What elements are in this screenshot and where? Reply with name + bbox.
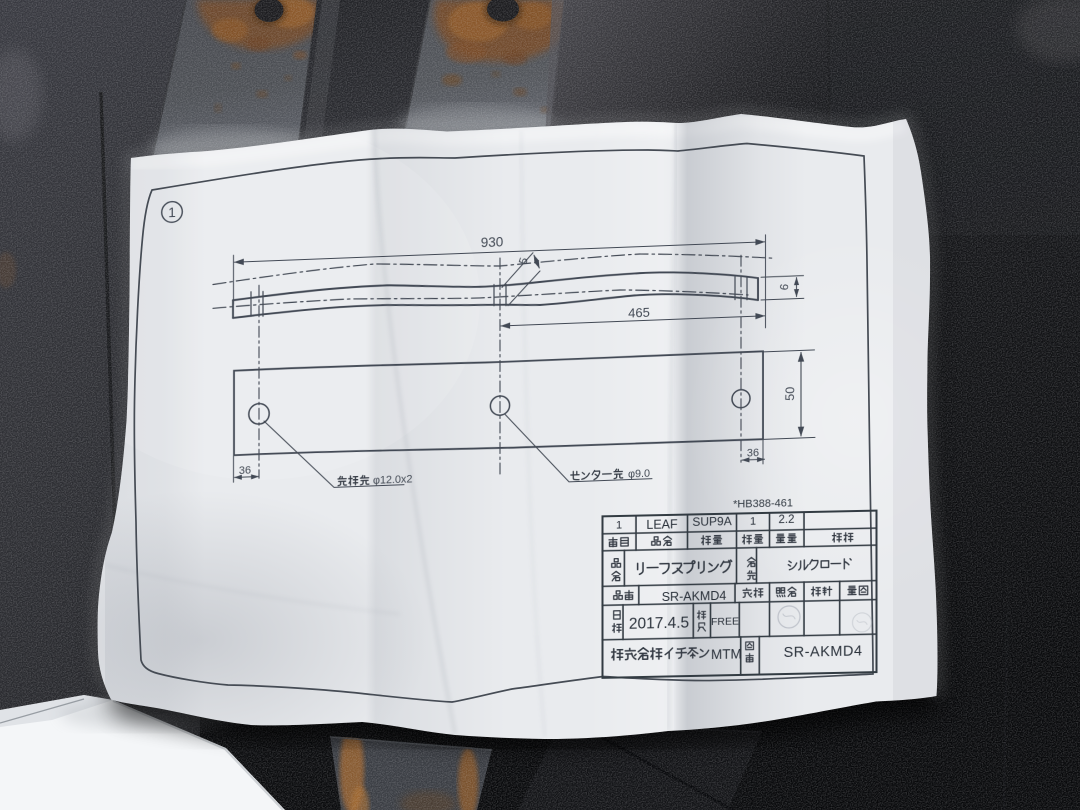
svg-text:6: 6	[779, 283, 792, 291]
svg-text:*HB388-461: *HB388-461	[733, 498, 793, 511]
svg-text:LEAF: LEAF	[646, 517, 678, 532]
svg-text:930: 930	[481, 234, 504, 250]
svg-text:SR-AKMD4: SR-AKMD4	[662, 589, 727, 604]
svg-text:2.2: 2.2	[779, 514, 795, 526]
svg-text:2017.4.5: 2017.4.5	[629, 615, 689, 633]
svg-text:φ12.0x2: φ12.0x2	[373, 473, 412, 487]
svg-text:FREE: FREE	[711, 615, 739, 628]
svg-text:1: 1	[750, 516, 756, 528]
svg-text:SUP9A: SUP9A	[692, 514, 731, 529]
svg-text:465: 465	[628, 305, 650, 321]
svg-text:36: 36	[239, 465, 251, 477]
svg-text:MTM: MTM	[711, 646, 742, 662]
svg-text:50: 50	[783, 387, 797, 401]
svg-text:1: 1	[168, 205, 176, 220]
svg-text:SR-AKMD4: SR-AKMD4	[784, 643, 863, 661]
svg-text:φ9.0: φ9.0	[628, 468, 650, 481]
svg-text:36: 36	[747, 447, 759, 459]
svg-text:1: 1	[616, 519, 622, 531]
